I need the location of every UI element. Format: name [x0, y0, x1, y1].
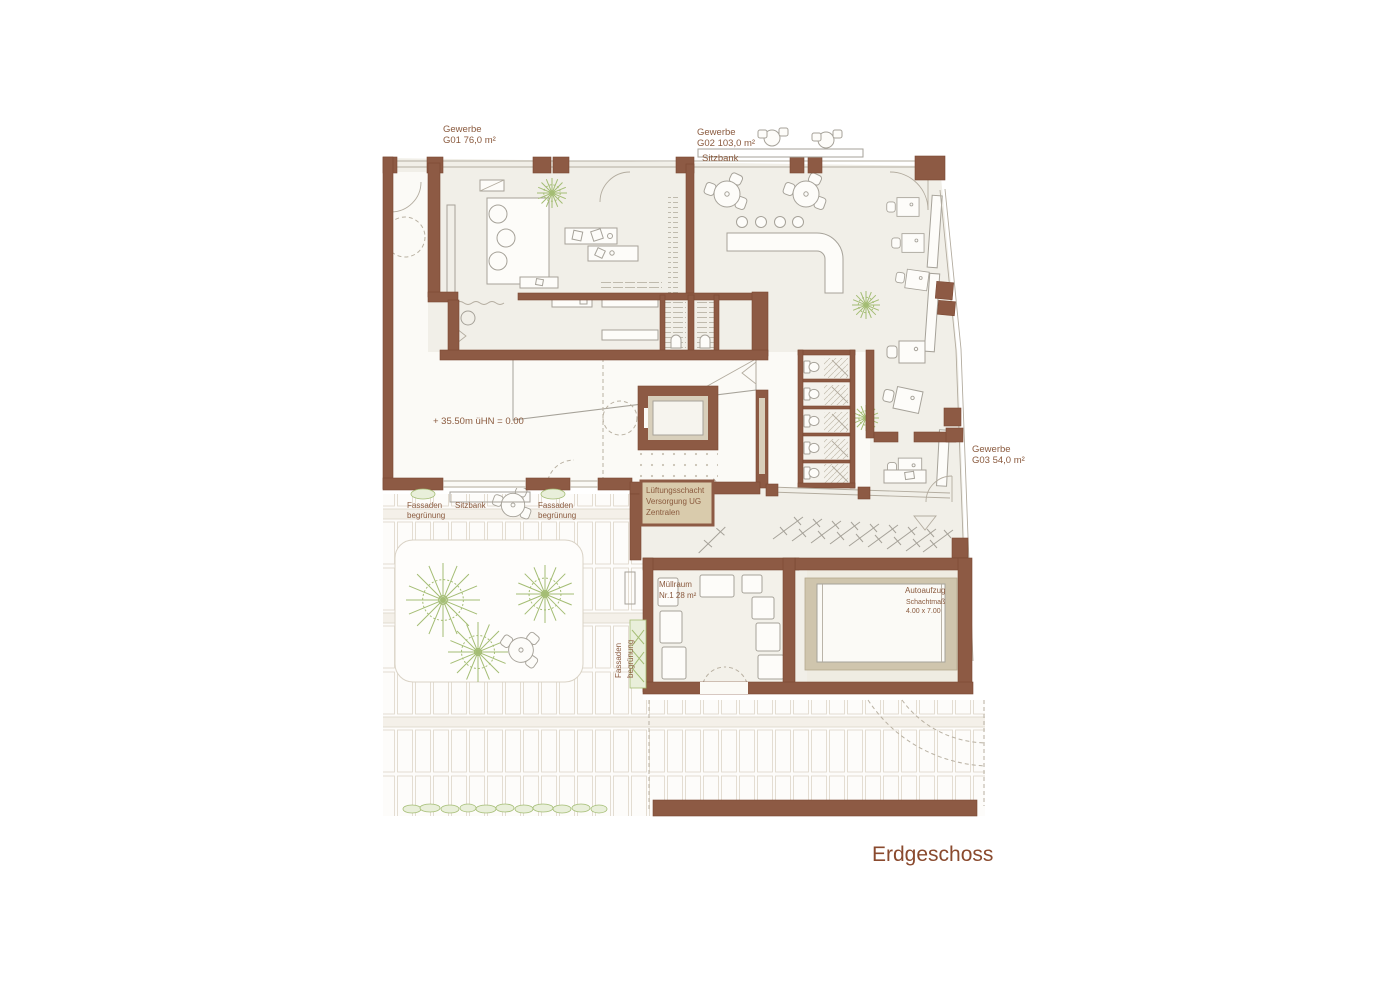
muellraum-label-line2: Nr.1 28 m²: [659, 591, 697, 600]
shrub-strip: [403, 804, 607, 813]
g01-area-label: G01 76,0 m²: [443, 135, 496, 146]
fassade3-label-line2: begrünung: [626, 640, 635, 678]
fassade1-label-line2: begrünung: [407, 511, 445, 520]
elevator: [638, 386, 718, 450]
sitzbank-court-label: Sitzbank: [455, 501, 487, 510]
fassade1-label-line1: Fassaden: [407, 501, 442, 510]
autoaufzug-dim-line2: 4.00 x 7.00: [906, 608, 941, 615]
fassade2-label-line2: begrünung: [538, 511, 576, 520]
wc-block: [802, 354, 850, 484]
muellraum-label-line1: Müllraum: [659, 580, 692, 589]
g01-label: Gewerbe: [443, 124, 482, 135]
sitzbank-top-label: Sitzbank: [702, 153, 739, 164]
level-annotation: + 35.50m üHN = 0.00: [433, 416, 524, 427]
lueftung-label-line2: Versorgung UG: [646, 497, 701, 506]
g02-label: Gewerbe: [697, 127, 736, 138]
floor-plan-page: + 35.50m üHN = 0.00: [0, 0, 1400, 991]
page-title: Erdgeschoss: [872, 843, 993, 866]
g02-area-label: G02 103,0 m²: [697, 138, 755, 149]
g03-label: Gewerbe: [972, 444, 1011, 455]
tree-icon: [448, 622, 508, 682]
lueftung-label-line3: Zentralen: [646, 508, 680, 517]
lueftungsschacht-box: Lüftungsschacht Versorgung UG Zentralen: [641, 481, 713, 525]
tree-icon: [516, 565, 574, 623]
dotted-floor: [640, 452, 718, 484]
autoaufzug-dim-line1: Schachtmaß: [906, 599, 945, 606]
fassade2-label-line1: Fassaden: [538, 501, 573, 510]
floor-plan-drawing: + 35.50m üHN = 0.00: [0, 0, 1400, 991]
planting-bed: [395, 540, 583, 682]
plant-icon: [852, 291, 880, 319]
lueftung-label-line1: Lüftungsschacht: [646, 486, 705, 495]
fassade3-label-line1: Fassaden: [614, 643, 623, 678]
plant-icon: [537, 178, 567, 208]
g03-area-label: G03 54,0 m²: [972, 455, 1025, 466]
autoaufzug-label: Autoaufzug: [905, 586, 945, 595]
